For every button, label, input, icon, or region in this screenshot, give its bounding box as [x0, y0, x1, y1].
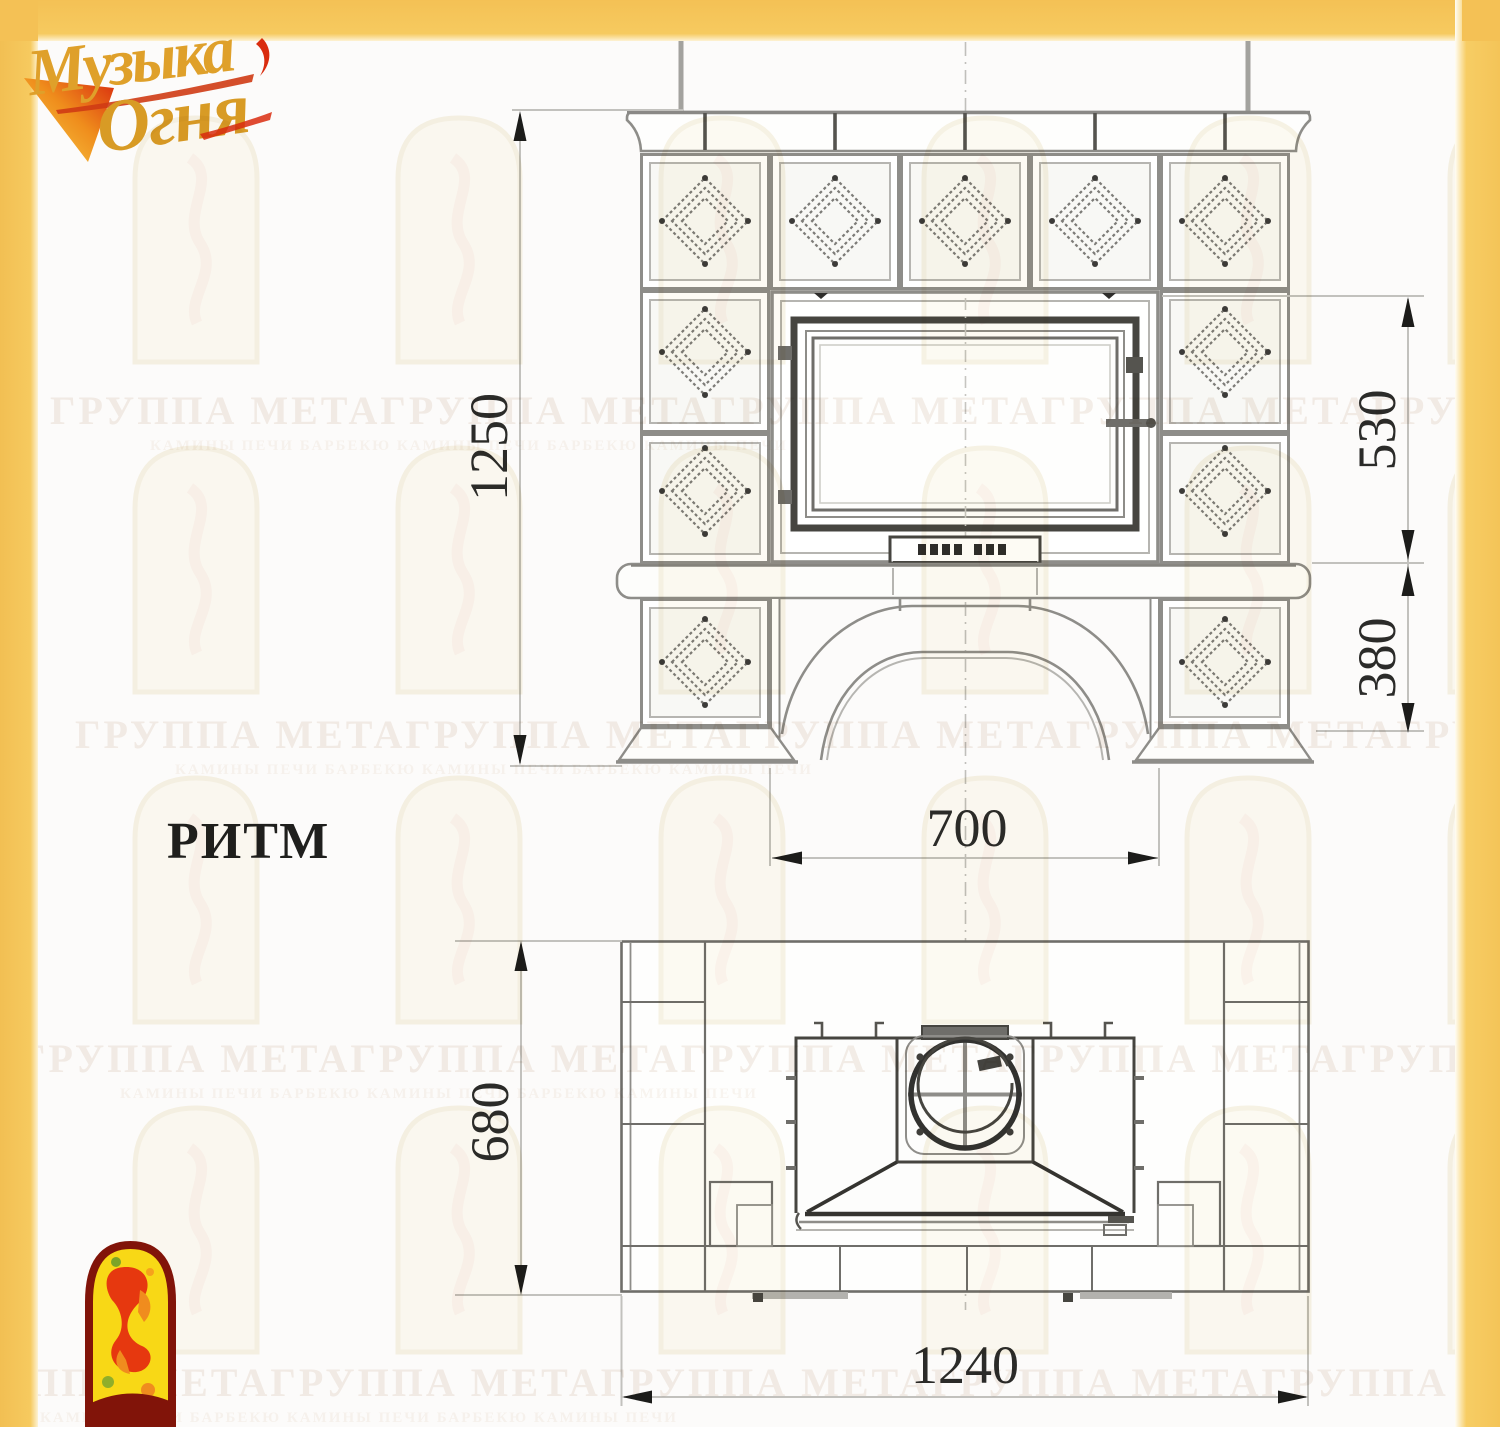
svg-text:КАМИНЫ ПЕЧИ БАРБЕКЮ КАМИНЫ ПЕЧ: КАМИНЫ ПЕЧИ БАРБЕКЮ КАМИНЫ ПЕЧИ БАРБЕКЮ … [150, 438, 788, 454]
svg-text:ГРУППА МЕТАГРУППА МЕТАГРУППА М: ГРУППА МЕТАГРУППА МЕТАГРУППА МЕТАГРУППА … [20, 1036, 1500, 1081]
svg-text:ГРУППА МЕТАГРУППА МЕТАГРУППА М: ГРУППА МЕТАГРУППА МЕТАГРУППА МЕТАГРУППА … [75, 712, 1500, 757]
svg-text:КАМИНЫ ПЕЧИ БАРБЕКЮ КАМИНЫ ПЕЧ: КАМИНЫ ПЕЧИ БАРБЕКЮ КАМИНЫ ПЕЧИ БАРБЕКЮ … [120, 1086, 758, 1102]
svg-text:ГРУППА МЕТАГРУППА МЕТАГРУППА М: ГРУППА МЕТАГРУППА МЕТАГРУППА МЕТАГРУППА … [0, 1360, 1449, 1405]
svg-text:ГРУППА МЕТАГРУППА МЕТАГРУППА М: ГРУППА МЕТАГРУППА МЕТАГРУППА МЕТАГРУППА … [50, 388, 1500, 433]
svg-text:380: 380 [1347, 618, 1407, 699]
svg-text:КАМИНЫ ПЕЧИ БАРБЕКЮ КАМИНЫ ПЕЧ: КАМИНЫ ПЕЧИ БАРБЕКЮ КАМИНЫ ПЕЧИ БАРБЕКЮ … [175, 762, 813, 778]
